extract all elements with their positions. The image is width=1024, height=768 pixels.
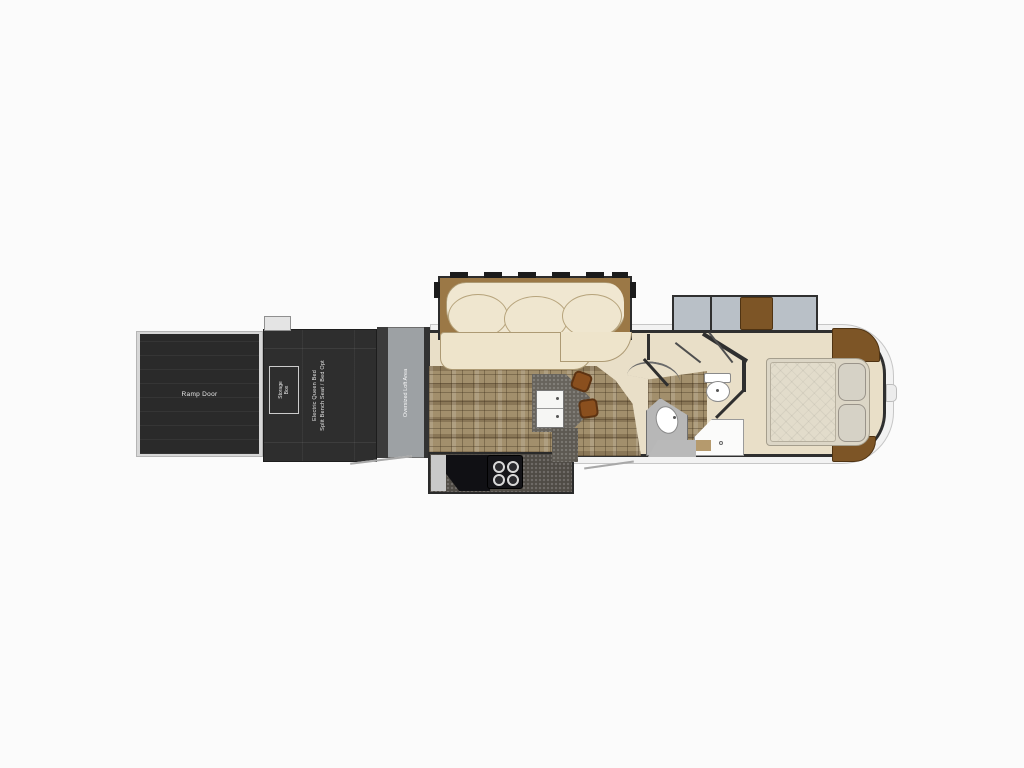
- window-mark: [518, 272, 536, 278]
- faucet-dot: [556, 397, 559, 400]
- ramp-door: Ramp Door: [140, 334, 259, 454]
- burner: [493, 461, 505, 473]
- dresser: [740, 297, 773, 330]
- bar-stool: [578, 398, 599, 419]
- bathroom-wall: [647, 334, 650, 360]
- entry-cabinet: [696, 440, 711, 451]
- loft-area: Oversized Loft Area: [388, 327, 424, 458]
- burner: [507, 461, 519, 473]
- stove: [487, 455, 523, 489]
- window-mark: [630, 282, 636, 298]
- faucet-dot: [556, 415, 559, 418]
- floorplan-canvas: Oversized Loft Area Storage Box Electric…: [0, 0, 1024, 768]
- storage-box-label: Storage Box: [278, 381, 290, 399]
- loft-label: Oversized Loft Area: [403, 368, 409, 416]
- toilet-dot: [716, 389, 719, 392]
- burner: [493, 474, 505, 486]
- ramp-door-label: Ramp Door: [140, 334, 259, 454]
- window-mark: [586, 272, 604, 278]
- window-mark: [484, 272, 502, 278]
- faucet-dot: [673, 416, 676, 419]
- sink-divider: [537, 408, 563, 409]
- wardrobe-top: [832, 328, 880, 362]
- garage-bed-label: Electric Queen Bed Split Bench Seat / Be…: [296, 338, 342, 452]
- burner: [507, 474, 519, 486]
- slide-end-panel: [431, 455, 446, 491]
- toilet-wall-right: [742, 358, 746, 392]
- pillow: [838, 363, 866, 401]
- storage-box: Storage Box: [269, 366, 299, 414]
- window-mark: [434, 282, 440, 298]
- bed-quilt: [770, 362, 836, 442]
- window-mark: [450, 272, 468, 278]
- loft-wall-left: [377, 327, 388, 458]
- shower-drain: [719, 441, 723, 445]
- hitch-pin: [886, 384, 897, 402]
- garage-roof-vent: [264, 316, 291, 331]
- slide-divider-wall: [710, 295, 712, 332]
- pillow: [838, 404, 866, 442]
- window-mark: [612, 272, 628, 278]
- island-counter-join: [552, 444, 578, 462]
- window-mark: [552, 272, 570, 278]
- double-sink: [536, 390, 564, 428]
